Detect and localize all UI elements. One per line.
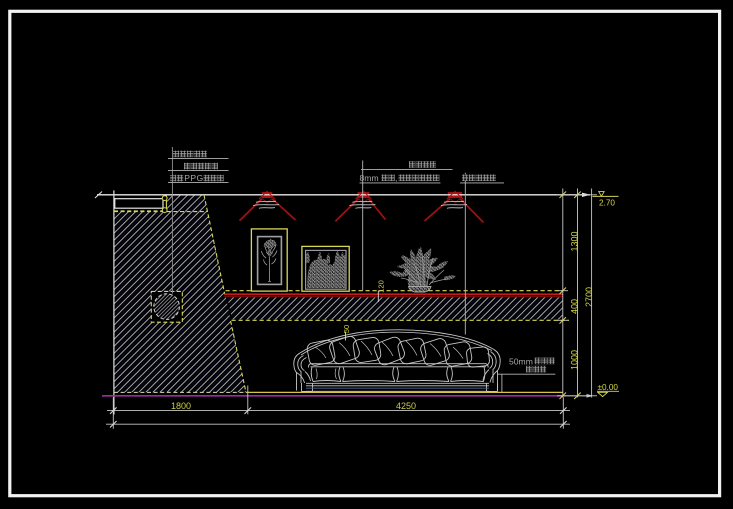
svg-text:2700: 2700 <box>584 287 594 307</box>
svg-text:4250: 4250 <box>396 401 416 411</box>
svg-text:1000: 1000 <box>570 350 580 370</box>
svg-text:8mm: 8mm <box>360 173 379 183</box>
svg-text:±0.00: ±0.00 <box>598 383 619 392</box>
svg-text:1300: 1300 <box>570 231 580 251</box>
svg-text:2.70: 2.70 <box>599 199 615 208</box>
svg-text:,: , <box>395 173 397 183</box>
svg-text:50: 50 <box>342 325 351 333</box>
svg-text:1800: 1800 <box>171 401 191 411</box>
svg-text:400: 400 <box>570 299 580 314</box>
svg-text:50mm: 50mm <box>509 356 533 366</box>
svg-text:PPG: PPG <box>184 173 203 183</box>
